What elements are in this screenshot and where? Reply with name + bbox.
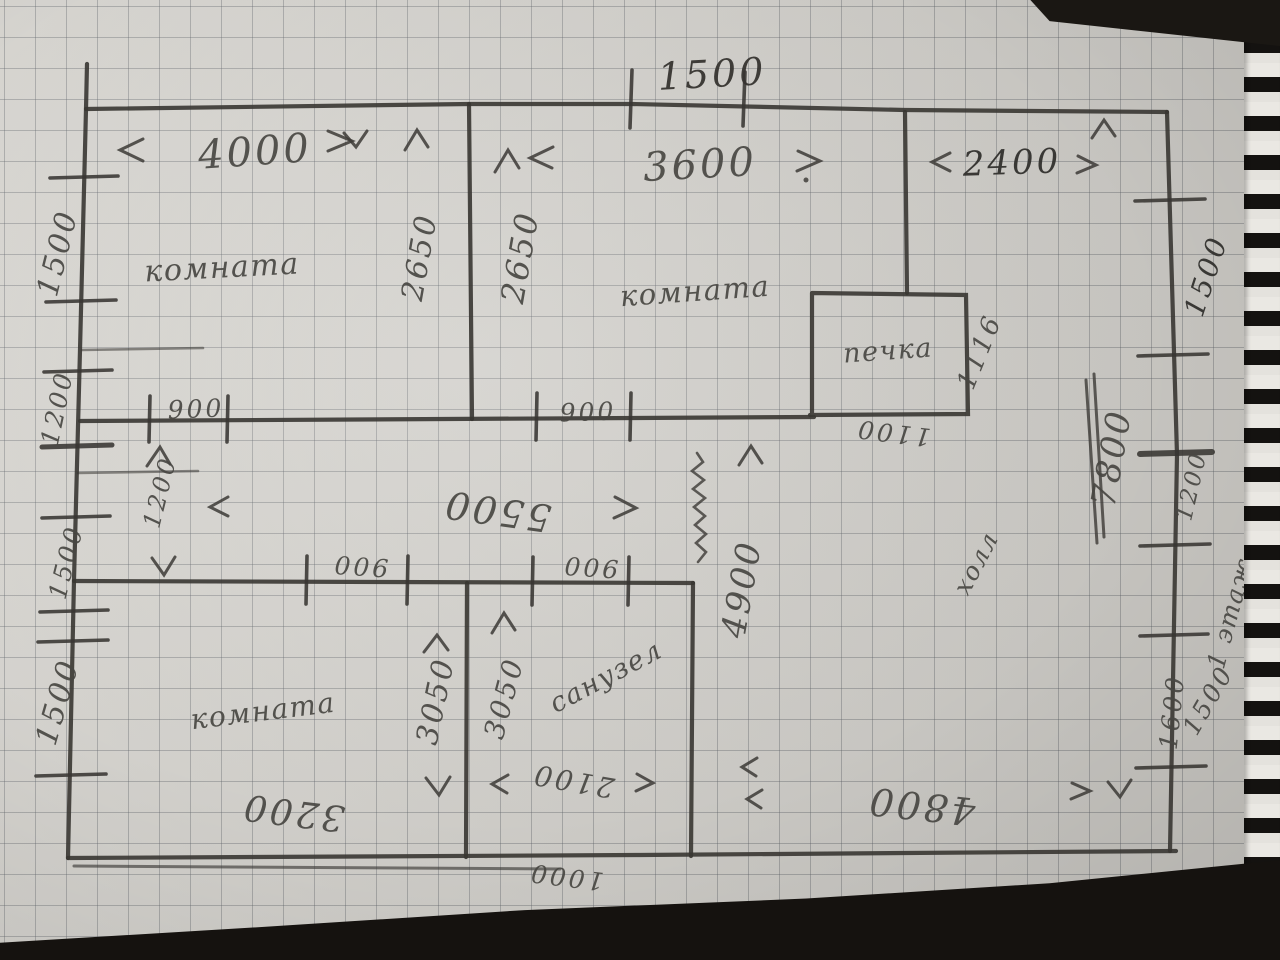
- notebook-perforation-edge: [1244, 38, 1280, 868]
- dim-door-900-c: 900: [331, 550, 390, 583]
- dim-door-900-d: 900: [561, 551, 620, 584]
- dim-room2-width-3600: 3600: [642, 139, 758, 191]
- dim-door-900-a: 900: [167, 394, 225, 425]
- stove-label: печка: [842, 332, 934, 369]
- wall-lines: [68, 64, 1177, 869]
- dim-room1-width-4000: 4000: [197, 125, 314, 179]
- stray-dot: [804, 178, 809, 183]
- dim-door-900-b: 900: [559, 397, 617, 428]
- dim-top-right-2400: 2400: [962, 141, 1062, 184]
- dim-top-window-1500: 1500: [657, 49, 768, 99]
- floor-plan-sketch-photo: 1500 4000 комната 2650 2650 3600 комната…: [0, 0, 1280, 960]
- squiggle-mark: [692, 453, 706, 562]
